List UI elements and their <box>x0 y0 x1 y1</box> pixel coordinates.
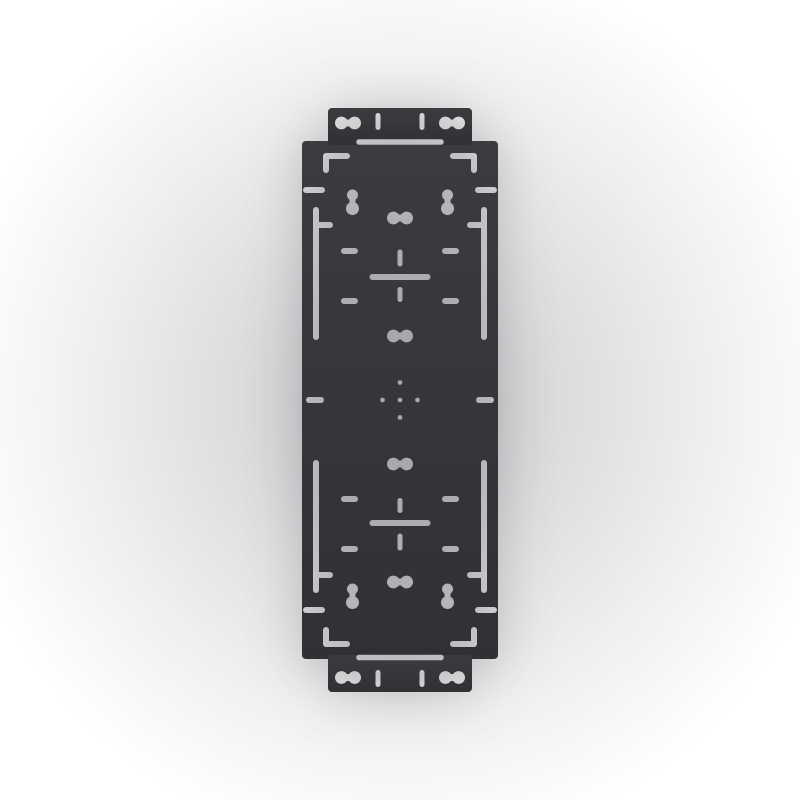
mounting-plate-illustration <box>0 0 800 800</box>
studio-backdrop <box>0 0 800 800</box>
plate-body <box>302 141 498 659</box>
plate-silhouette <box>302 108 498 692</box>
plate-tab-bottom <box>328 655 472 692</box>
plate-tab-top <box>328 108 472 145</box>
